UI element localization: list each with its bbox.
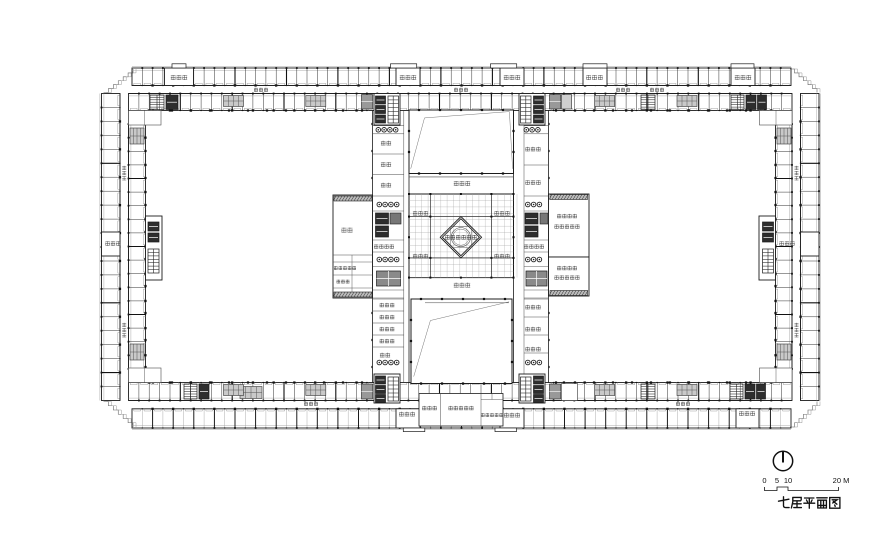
svg-text:20 M: 20 M xyxy=(833,476,850,485)
svg-text:5: 5 xyxy=(775,476,779,485)
svg-text:10: 10 xyxy=(784,476,792,485)
svg-text:0: 0 xyxy=(762,476,766,485)
